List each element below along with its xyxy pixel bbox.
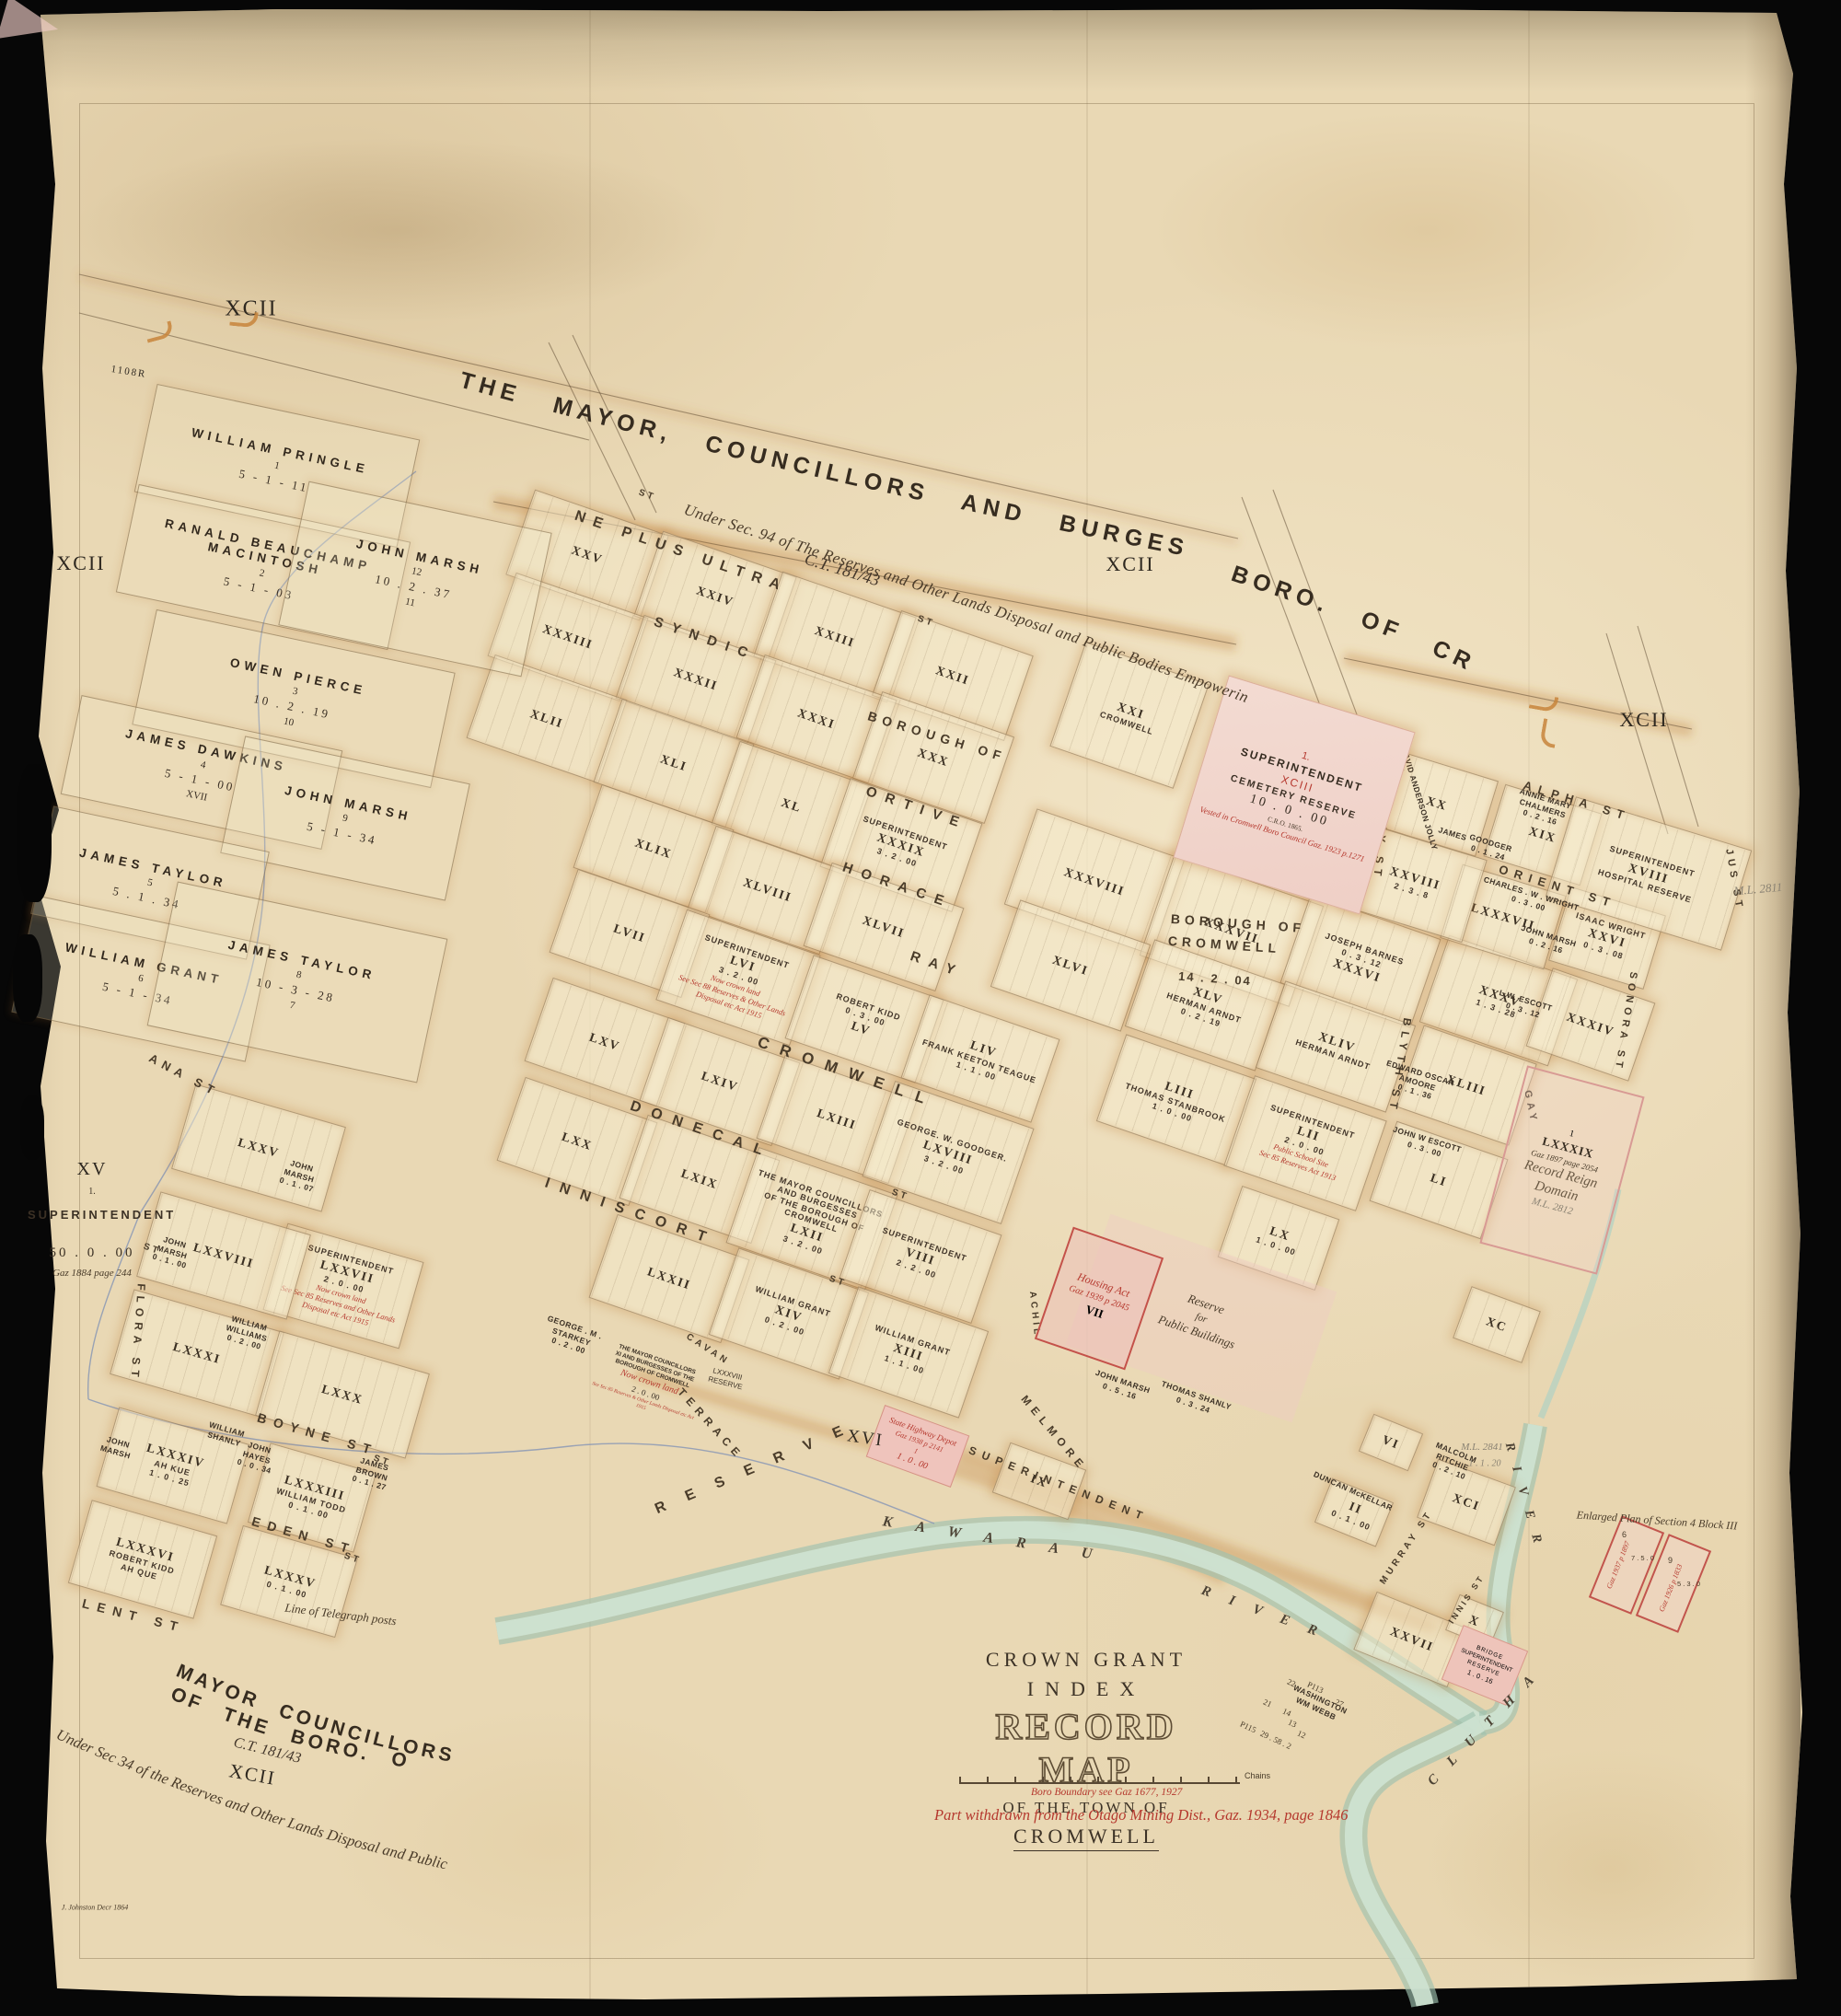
torn-edge: [17, 764, 52, 902]
bottom-left-arc-line1: MAYOR COUNCILLORS AND BURGESSES: [0, 0, 478, 1771]
torn-edge: [13, 934, 42, 1022]
scanned-map-photo: XXVXXIVXXIIIXXIIXXICROMWELLXXXIIIXXXIIXX…: [0, 0, 1841, 2016]
top-arc-act-note: Under Sec. 94 of The Reserves and Other …: [0, 0, 1251, 706]
svg-text:OF THE BORO. OF CROMWELL: OF THE BORO. OF CROMWELL: [0, 0, 411, 1772]
svg-text:MAYOR COUNCILLORS AND BURGE: MAYOR COUNCILLORS AND BURGESSES: [0, 0, 478, 1771]
svg-text:Under Sec 34 of the Reserves a: Under Sec 34 of the Reserves and Other L…: [0, 0, 453, 1873]
svg-text:BORO. OF CROMWELL: BORO. OF CROMWELL: [0, 0, 1480, 677]
bottom-left-act-note: Under Sec 34 of the Reserves and Other L…: [0, 0, 453, 1873]
svg-text:Under Sec. 94 of The Reserves: Under Sec. 94 of The Reserves and Other …: [0, 0, 1251, 706]
top-arc-title-line1: THE MAYOR, COUNCILLORS AND BURGESSES OF …: [0, 0, 1191, 562]
arc-title-layer: THE MAYOR, COUNCILLORS AND BURGESSES OF …: [0, 0, 1841, 2016]
top-arc-title-line2: BORO. OF CROMWELL: [0, 0, 1480, 677]
svg-text:THE MAYOR, COUNCILLORS AND: THE MAYOR, COUNCILLORS AND BURGESSES OF …: [0, 0, 1191, 562]
bottom-left-sheet-numeral: XCII: [227, 1759, 278, 1790]
bottom-left-arc-line2: OF THE BORO. OF CROMWELL: [0, 0, 411, 1772]
torn-edge: [20, 1095, 44, 1160]
